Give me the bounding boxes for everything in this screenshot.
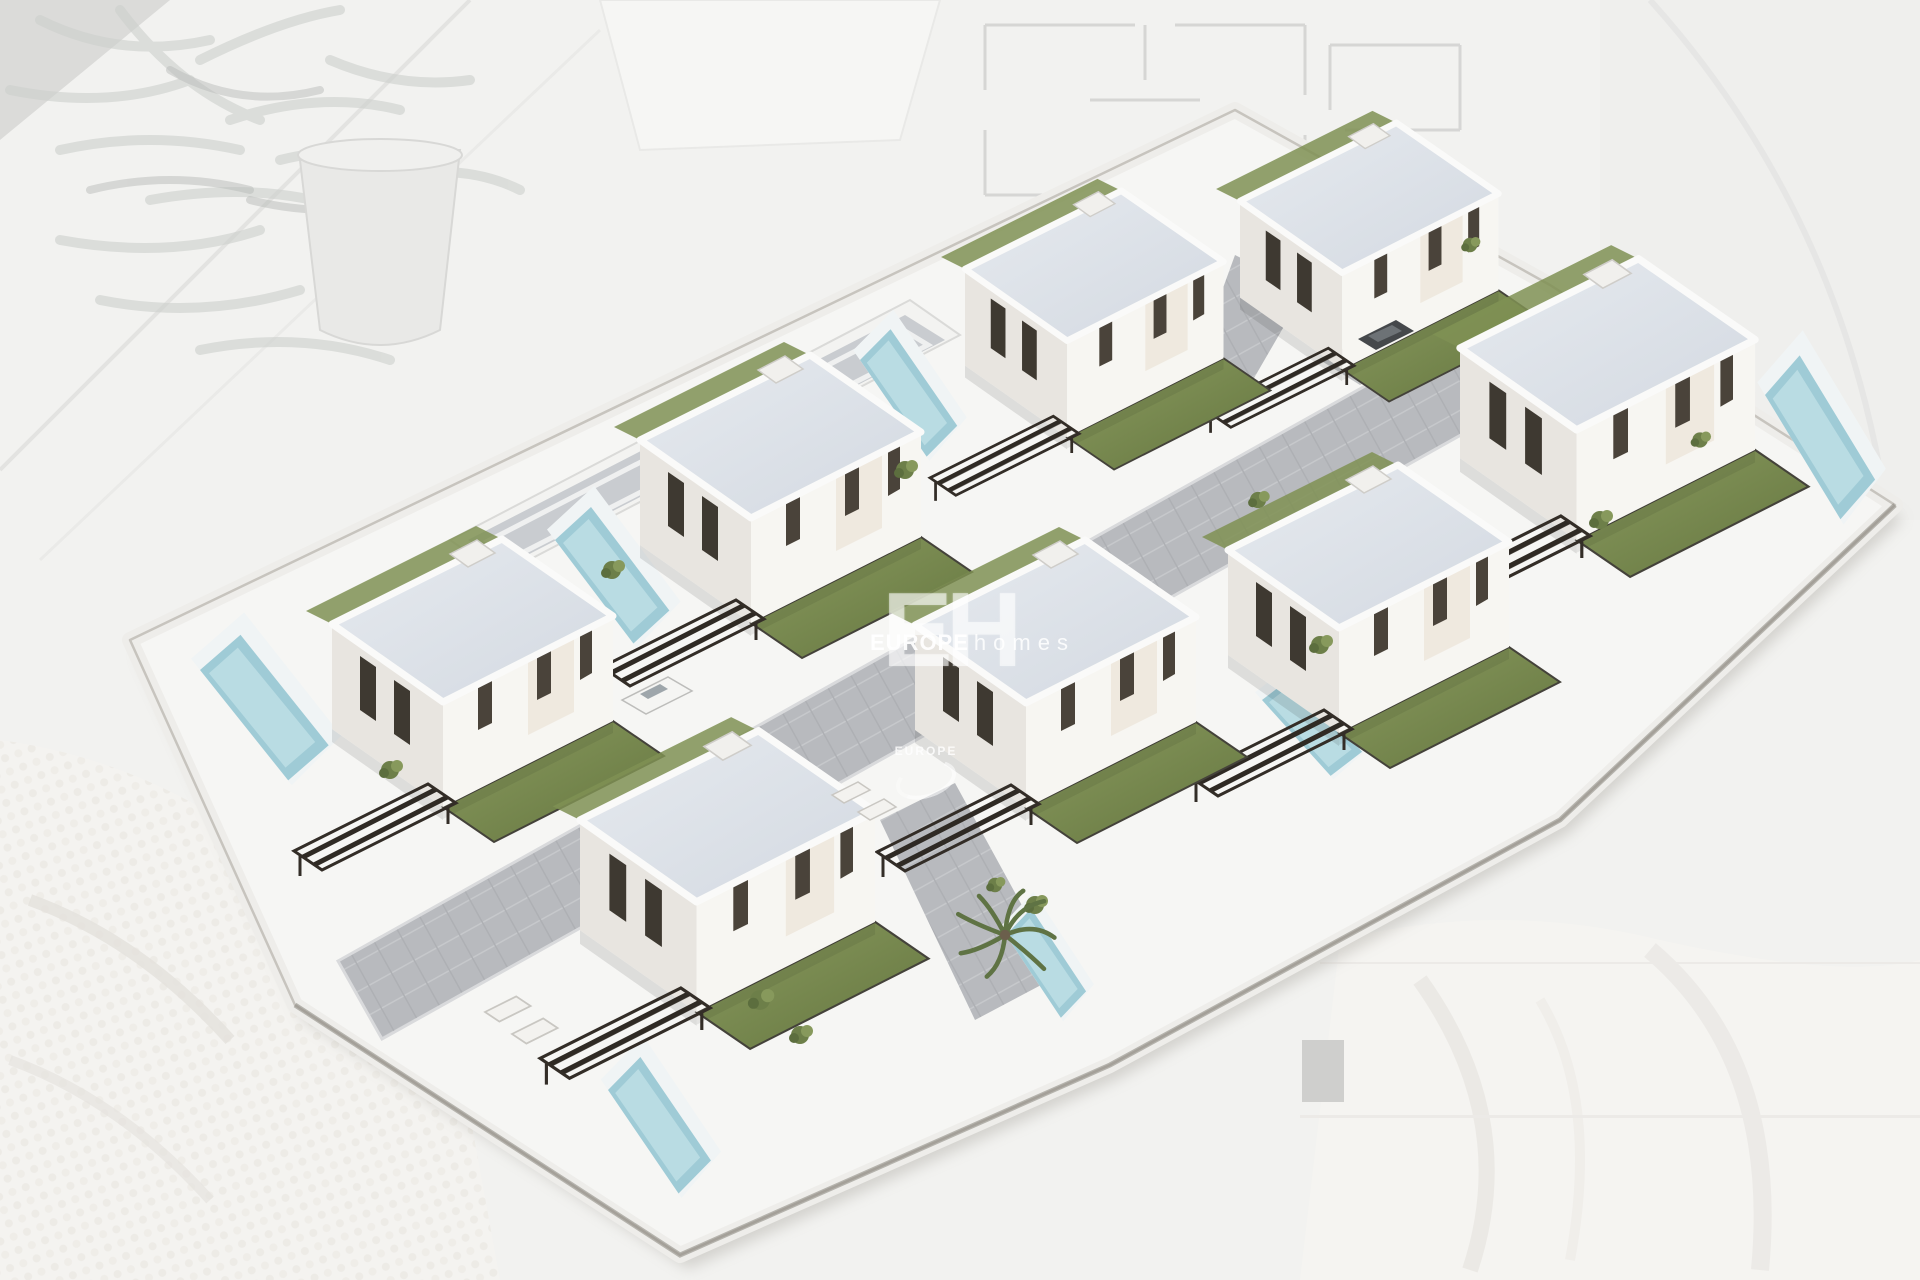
white-fabric	[1300, 920, 1920, 1280]
render-canvas: EH EUROPEhomes EUROPE	[0, 0, 1920, 1280]
plant-pot	[300, 150, 460, 345]
fabric-shadow-patch	[1302, 1040, 1344, 1102]
scene-render	[0, 0, 1920, 1280]
